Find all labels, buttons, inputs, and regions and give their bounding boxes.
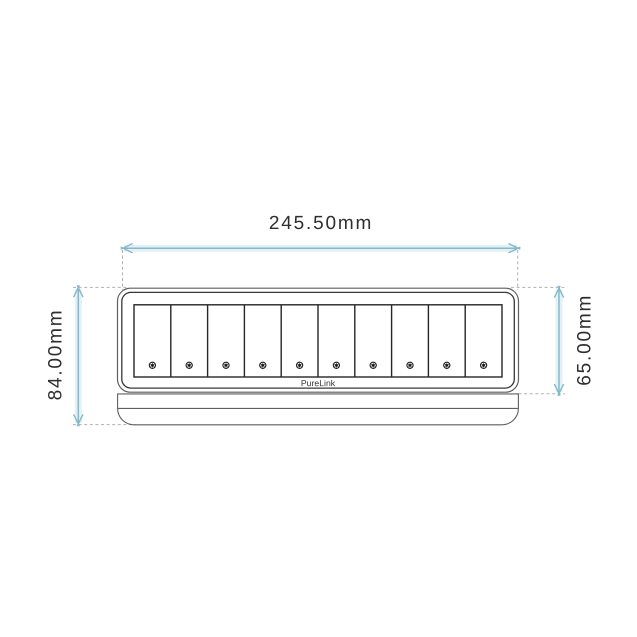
svg-text:PureLink: PureLink xyxy=(301,378,336,388)
svg-text:84.00mm: 84.00mm xyxy=(46,309,67,401)
svg-text:65.00mm: 65.00mm xyxy=(575,294,596,386)
svg-text:245.50mm: 245.50mm xyxy=(269,213,373,234)
